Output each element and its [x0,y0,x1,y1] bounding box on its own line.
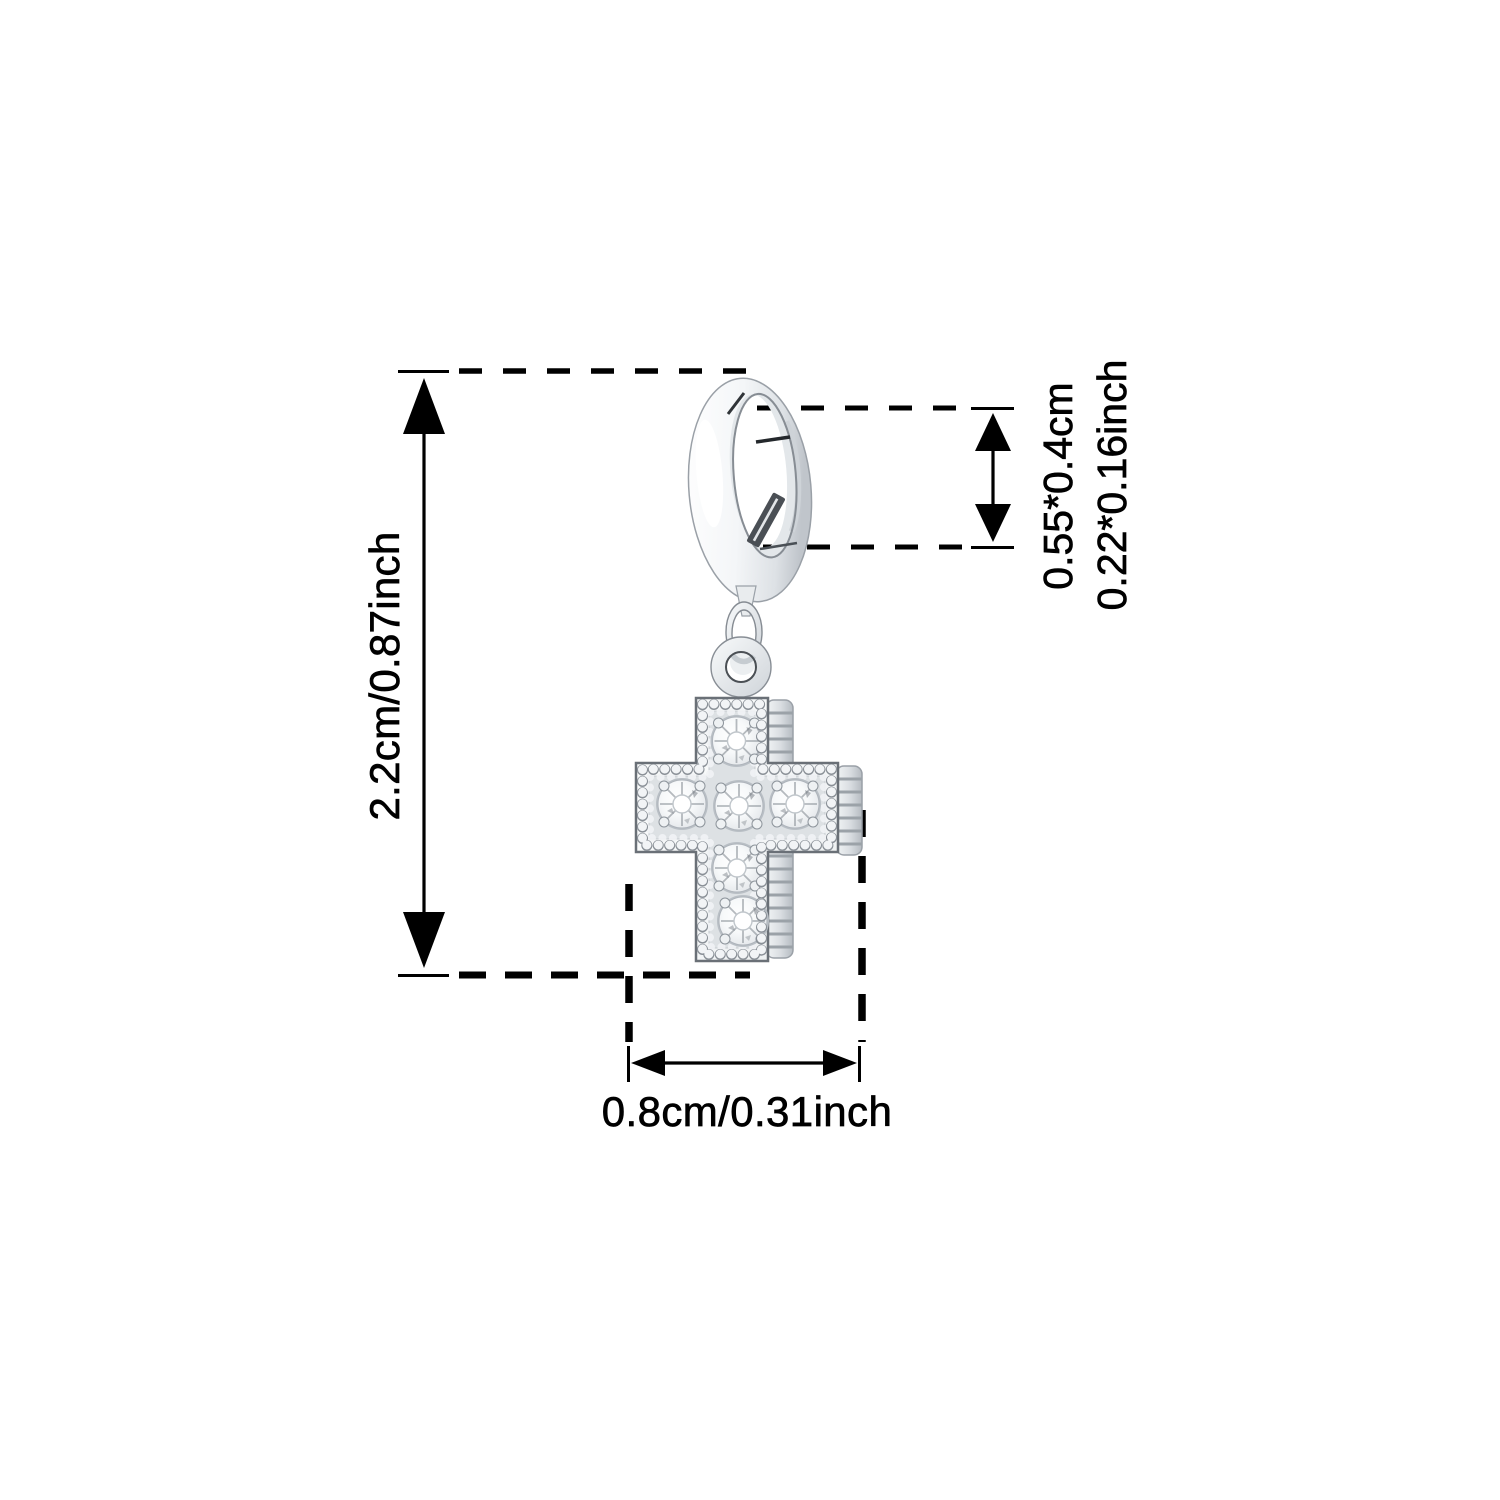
svg-text:0.55*0.4cm: 0.55*0.4cm [1035,382,1081,589]
svg-text:0.22*0.16inch: 0.22*0.16inch [1089,360,1135,611]
svg-text:2.2cm/0.87inch: 2.2cm/0.87inch [361,531,408,820]
svg-text:0.8cm/0.31inch: 0.8cm/0.31inch [602,1088,892,1135]
